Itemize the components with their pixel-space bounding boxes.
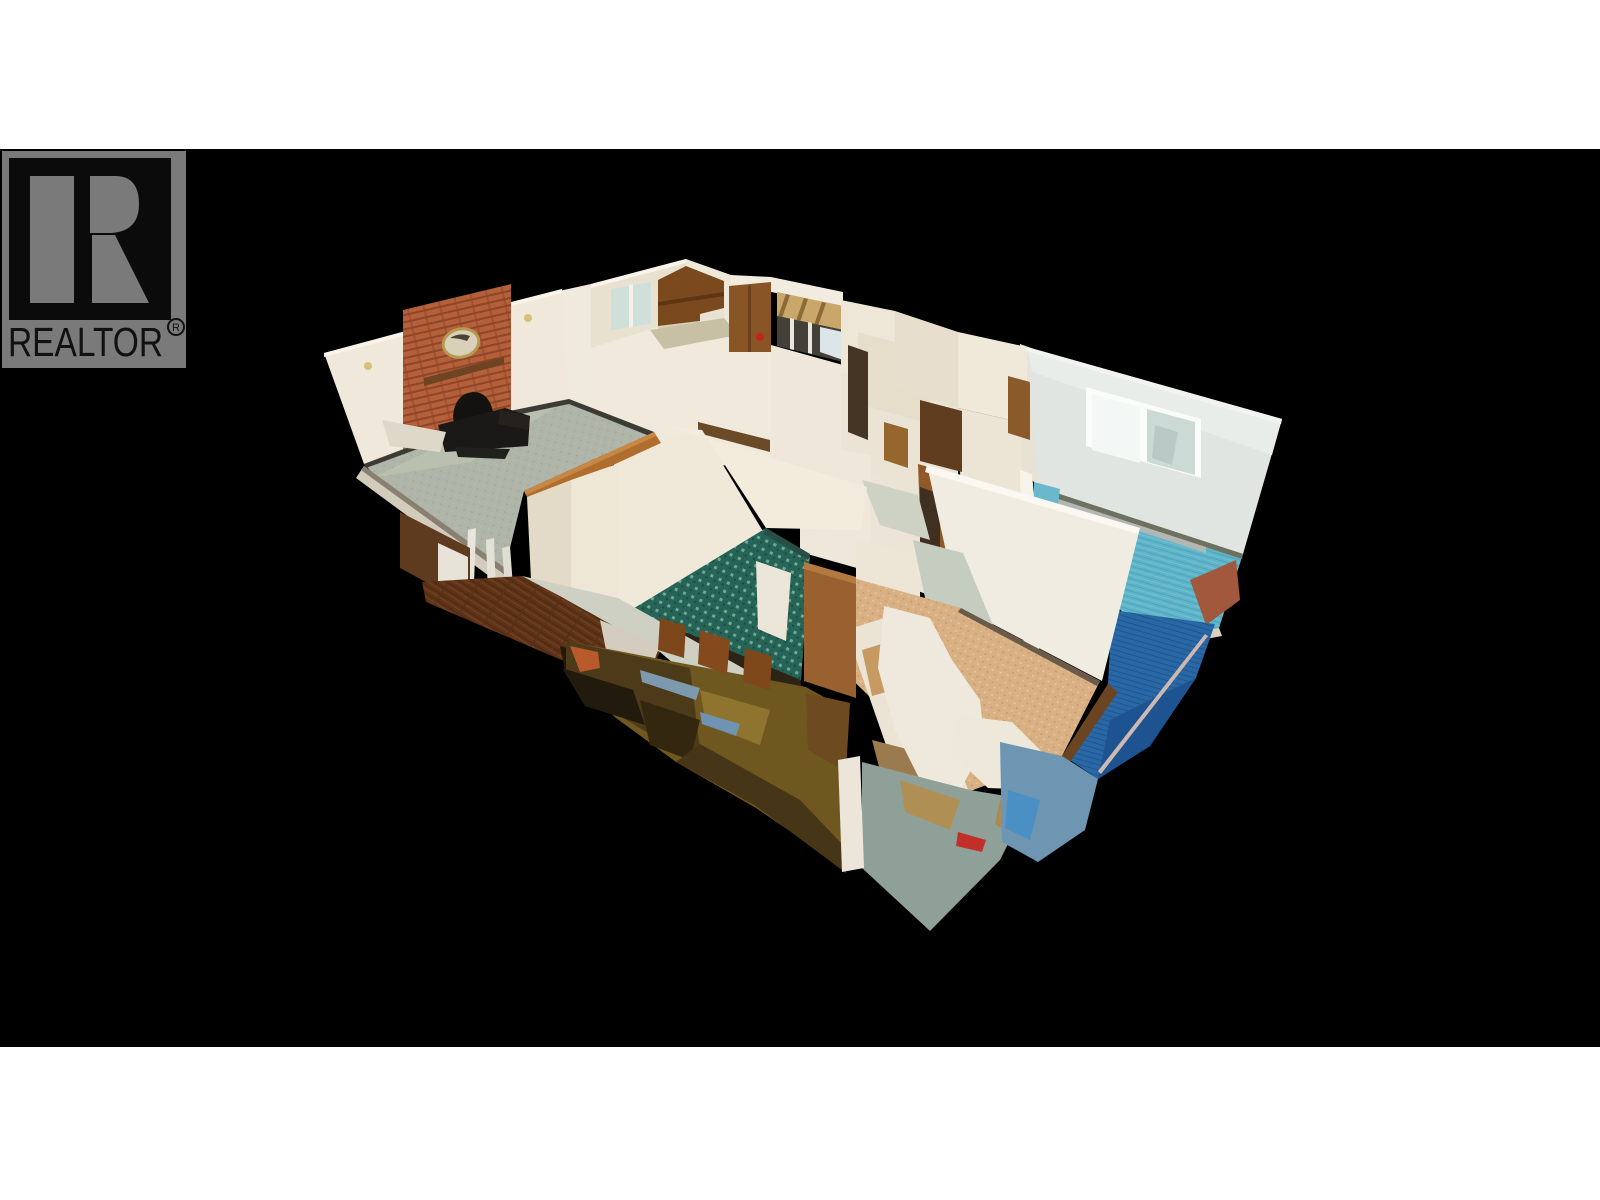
svg-text:REALTOR: REALTOR	[8, 319, 163, 365]
svg-text:R: R	[172, 322, 180, 334]
